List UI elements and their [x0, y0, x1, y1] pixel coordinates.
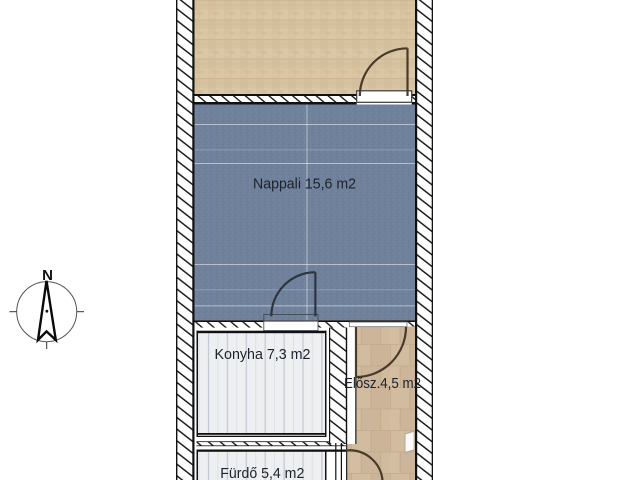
- svg-text:Fürdő 5,4 m2: Fürdő 5,4 m2: [220, 466, 304, 480]
- svg-text:Elősz.4,5 m2: Elősz.4,5 m2: [344, 376, 421, 392]
- svg-text:Nappali 15,6 m2: Nappali 15,6 m2: [253, 177, 356, 193]
- svg-text:Konyha 7,3 m2: Konyha 7,3 m2: [215, 347, 311, 363]
- svg-text:N: N: [42, 267, 53, 284]
